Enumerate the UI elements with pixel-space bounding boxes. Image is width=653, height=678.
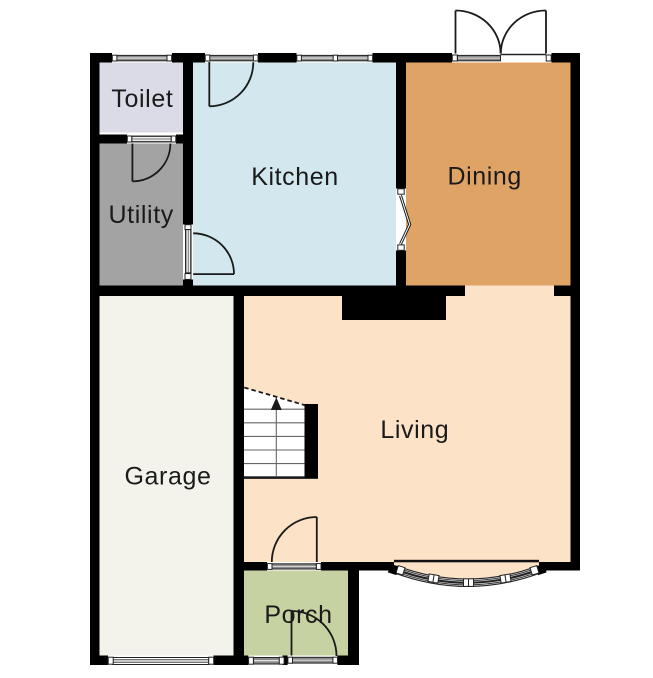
svg-text:Garage: Garage [125, 463, 212, 491]
svg-text:Dining: Dining [447, 163, 521, 191]
svg-text:Living: Living [380, 416, 449, 444]
svg-text:Toilet: Toilet [111, 85, 173, 113]
svg-text:Kitchen: Kitchen [251, 163, 339, 191]
svg-text:Utility: Utility [109, 201, 174, 229]
svg-text:Porch: Porch [264, 601, 332, 629]
